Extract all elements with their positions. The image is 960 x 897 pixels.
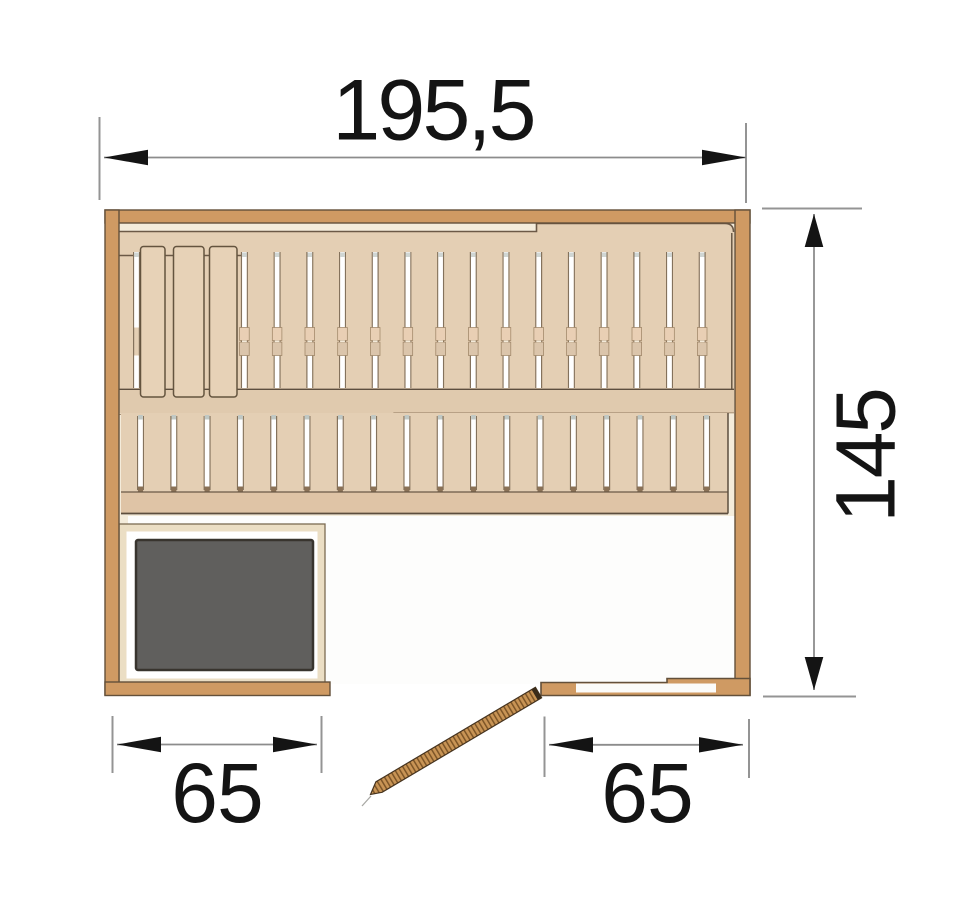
svg-text:195,5: 195,5	[332, 63, 533, 159]
svg-text:65: 65	[171, 746, 262, 840]
svg-text:145: 145	[819, 389, 913, 523]
svg-text:65: 65	[601, 746, 692, 840]
